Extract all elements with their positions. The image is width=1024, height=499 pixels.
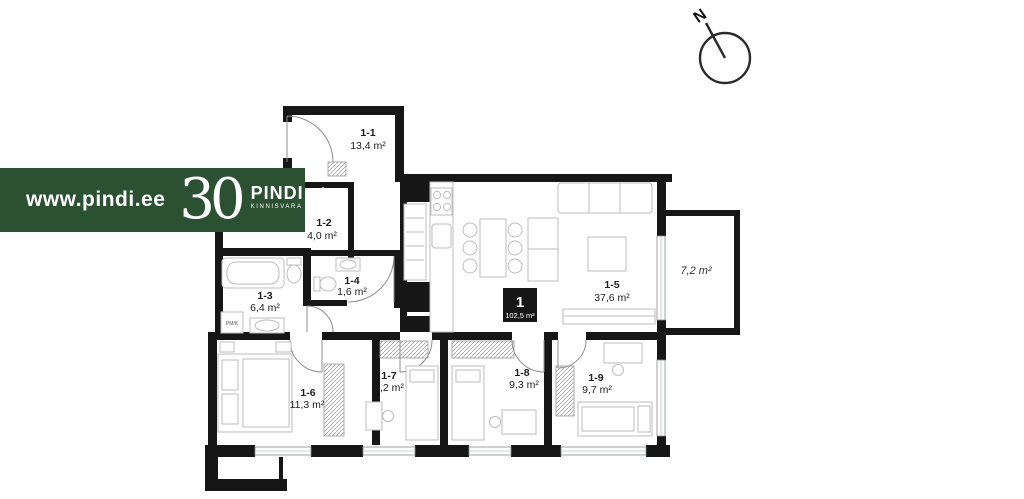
house-icon [311,184,335,213]
entry-door [287,116,333,162]
room-label-1-5: 1-5 [604,279,619,291]
bed-1-6 [218,354,292,432]
room-label-1-6: 1-6 [300,387,315,399]
north-compass: N [691,6,750,83]
sofa [558,183,652,213]
room-area-1-7: 9,2 m² [374,382,404,394]
desk-1-7 [366,402,394,430]
pindi-banner: www.pindi.ee 30 PINDI KINNISVARA [0,168,305,232]
desk-1-8 [490,410,537,434]
toilet-1-4 [314,277,336,291]
wardrobe-1-6 [324,364,344,436]
stove [431,188,452,215]
brand-block: PINDI KINNISVARA [251,184,304,210]
door-1-3 [307,306,333,332]
anniversary-number: 30 [179,171,240,229]
sink-1-4 [336,258,360,271]
room-area-1-4: 1,6 m² [337,286,367,298]
room-label-1-8: 1-8 [514,367,529,379]
room-label-1-2: 1-2 [316,217,331,229]
wardrobe-1-8 [452,341,514,358]
room-area-1-5: 37,6 m² [594,292,630,304]
door-1-6 [290,340,322,372]
bed-1-8 [452,366,484,440]
door-1-9 [558,340,586,368]
nightstand [220,342,291,352]
bed-1-9 [578,402,652,436]
room-area-1-2: 4,0 m² [307,230,337,242]
room-label-1-9: 1-9 [588,372,603,384]
room-label-1-3: 1-3 [257,290,272,302]
room-label-1-7: 1-7 [381,370,396,382]
wardrobe-1-1 [328,162,346,176]
tv-bench [563,309,655,324]
wardrobe-1-9 [556,366,574,416]
room-label-1-1: 1-1 [360,127,375,139]
toilet-1-3 [287,258,301,283]
room-area-1-8: 9,3 m² [509,379,539,391]
washer-label: PM/K [226,321,239,327]
room-area-1-9: 9,7 m² [582,384,612,396]
desk-1-9 [604,343,642,376]
room-area-1-6: 11,3 m² [290,399,325,411]
balcony-area-label: 7,2 m² [680,265,712,277]
unit-total-area: 102,5 m² [505,311,535,320]
kitchen-sink [432,224,451,248]
dining-table [480,219,506,277]
unit-badge: 1 102,5 m² [503,288,537,322]
website-url: www.pindi.ee [26,188,165,212]
brand-name: PINDI [251,184,304,202]
bathtub [222,258,284,288]
kitchen-cabinet [404,204,426,280]
coffee-table [588,237,626,271]
sink-1-3 [250,318,284,333]
bed-1-7 [406,366,438,440]
wardrobe-1-7 [380,341,428,358]
room-area-1-1: 13,4 m² [350,140,386,152]
kitchen-island [528,218,558,281]
unit-number: 1 [516,294,524,311]
room-area-1-3: 6,4 m² [250,302,280,314]
floor-plan-page: 1-1 13,4 m² 1-2 4,0 m² 1-3 6,4 m² 1-4 1,… [0,0,1024,499]
floor-plan-drawing: 1-1 13,4 m² 1-2 4,0 m² 1-3 6,4 m² 1-4 1,… [0,0,1024,499]
brand-subtitle: KINNISVARA [251,204,304,210]
